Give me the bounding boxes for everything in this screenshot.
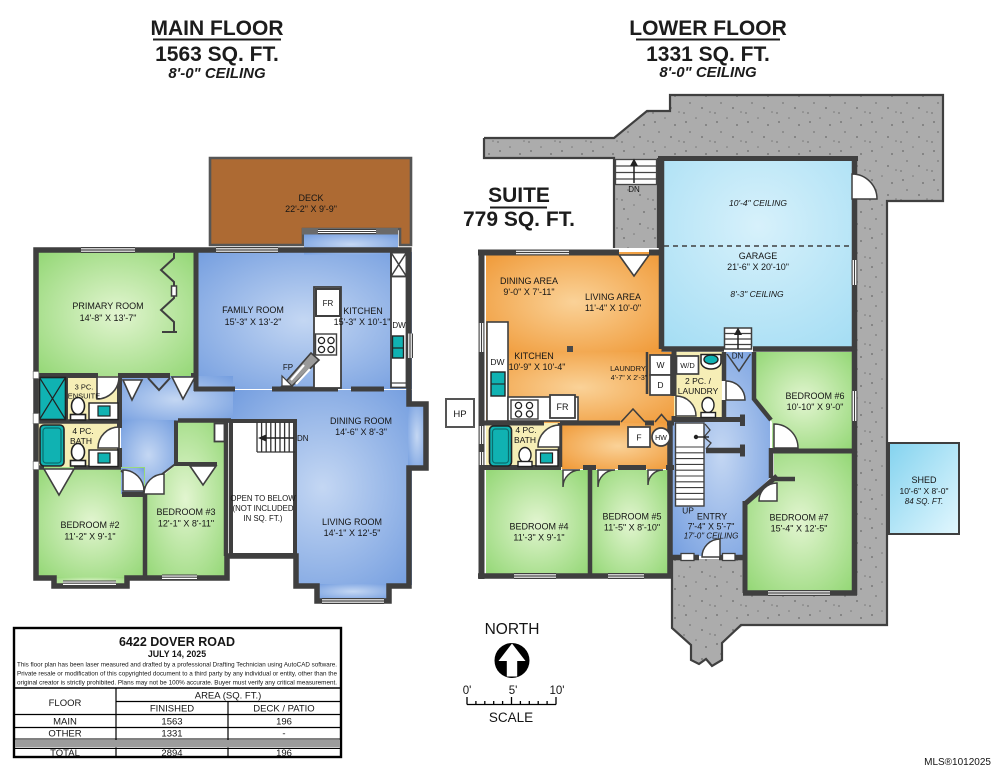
- svg-text:SUITE: SUITE: [488, 184, 550, 207]
- svg-text:FP: FP: [283, 363, 293, 372]
- svg-text:BEDROOM #6: BEDROOM #6: [785, 391, 844, 401]
- svg-text:DN: DN: [297, 434, 309, 443]
- svg-text:This floor plan has been laser: This floor plan has been laser measured …: [17, 662, 337, 669]
- svg-text:PRIMARY ROOM: PRIMARY ROOM: [72, 301, 143, 311]
- svg-text:1331 SQ. FT.: 1331 SQ. FT.: [646, 43, 770, 66]
- svg-text:1563 SQ. FT.: 1563 SQ. FT.: [155, 43, 279, 66]
- svg-text:14'-8" X 13'-7": 14'-8" X 13'-7": [80, 313, 137, 323]
- svg-text:W/D: W/D: [680, 361, 695, 370]
- svg-text:IN SQ. FT.): IN SQ. FT.): [244, 514, 283, 523]
- svg-text:BEDROOM #5: BEDROOM #5: [602, 512, 661, 522]
- svg-text:BEDROOM #2: BEDROOM #2: [60, 520, 119, 530]
- svg-text:15'-3" X 10'-1": 15'-3" X 10'-1": [334, 317, 391, 327]
- svg-text:FAMILY ROOM: FAMILY ROOM: [222, 305, 284, 315]
- svg-text:84 SQ. FT.: 84 SQ. FT.: [905, 497, 943, 506]
- svg-text:14'-1" X 12'-5": 14'-1" X 12'-5": [324, 528, 381, 538]
- svg-text:DW: DW: [392, 321, 406, 330]
- svg-text:SHED: SHED: [911, 475, 937, 485]
- svg-text:10': 10': [550, 685, 565, 697]
- svg-text:OTHER: OTHER: [48, 729, 81, 740]
- svg-text:FINISHED: FINISHED: [150, 704, 194, 715]
- svg-text:8'-0" CEILING: 8'-0" CEILING: [168, 65, 266, 82]
- svg-text:11'-3" X 9'-1": 11'-3" X 9'-1": [513, 533, 564, 543]
- svg-text:UP: UP: [682, 506, 694, 516]
- svg-text:8'-0" CEILING: 8'-0" CEILING: [659, 64, 757, 81]
- svg-text:12'-1" X 8'-11": 12'-1" X 8'-11": [158, 519, 214, 529]
- svg-text:LOWER FLOOR: LOWER FLOOR: [629, 17, 786, 40]
- svg-text:779 SQ. FT.: 779 SQ. FT.: [463, 208, 575, 231]
- svg-text:MLS®1012025: MLS®1012025: [924, 757, 991, 768]
- svg-text:DECK / PATIO: DECK / PATIO: [253, 704, 314, 715]
- svg-text:22'-2" X 9'-9": 22'-2" X 9'-9": [285, 204, 337, 214]
- svg-text:NORTH: NORTH: [485, 621, 540, 638]
- svg-text:1563: 1563: [161, 717, 182, 728]
- svg-text:4 PC.: 4 PC.: [515, 425, 536, 435]
- svg-text:AREA (SQ. FT.): AREA (SQ. FT.): [195, 691, 262, 702]
- svg-text:MAIN FLOOR: MAIN FLOOR: [151, 17, 284, 40]
- svg-text:KITCHEN: KITCHEN: [514, 351, 554, 361]
- svg-text:F: F: [636, 433, 641, 443]
- svg-text:MAIN: MAIN: [53, 717, 77, 728]
- svg-text:0': 0': [463, 685, 472, 697]
- svg-text:15'-4" X 12'-5": 15'-4" X 12'-5": [771, 524, 828, 534]
- svg-text:Private resale or modification: Private resale or modification of this c…: [17, 671, 337, 678]
- svg-text:DINING ROOM: DINING ROOM: [330, 416, 392, 426]
- svg-text:(NOT INCLUDED: (NOT INCLUDED: [233, 504, 294, 513]
- svg-text:JULY 14, 2025: JULY 14, 2025: [148, 649, 206, 659]
- svg-text:KITCHEN: KITCHEN: [343, 306, 383, 316]
- svg-text:FR: FR: [323, 299, 334, 308]
- svg-text:BEDROOM #4: BEDROOM #4: [509, 522, 568, 532]
- svg-text:4'-7" X 2'-3": 4'-7" X 2'-3": [611, 375, 648, 382]
- svg-text:LAUNDRY: LAUNDRY: [610, 364, 646, 373]
- svg-text:10'-6" X 8'-0": 10'-6" X 8'-0": [900, 486, 949, 496]
- svg-text:LIVING ROOM: LIVING ROOM: [322, 517, 382, 527]
- svg-text:3 PC.: 3 PC.: [75, 383, 94, 392]
- svg-text:ENTRY: ENTRY: [697, 512, 727, 522]
- svg-text:GARAGE: GARAGE: [739, 251, 778, 261]
- svg-text:original creator is strictly p: original creator is strictly prohibited.…: [17, 680, 337, 687]
- svg-text:LIVING AREA: LIVING AREA: [585, 292, 641, 302]
- svg-text:DW: DW: [490, 357, 504, 367]
- svg-text:2894: 2894: [161, 748, 182, 759]
- svg-text:9'-0" X 7'-11": 9'-0" X 7'-11": [503, 287, 554, 297]
- svg-text:ENSUITE: ENSUITE: [68, 392, 101, 401]
- svg-text:5': 5': [509, 685, 518, 697]
- svg-text:TOTAL: TOTAL: [50, 748, 80, 759]
- svg-text:2 PC. /: 2 PC. /: [685, 376, 712, 386]
- svg-text:OPEN TO BELOW: OPEN TO BELOW: [230, 494, 296, 503]
- svg-text:7'-4" X 5'-7": 7'-4" X 5'-7": [688, 522, 735, 532]
- svg-text:10'-10" X 9'-0": 10'-10" X 9'-0": [787, 402, 844, 412]
- svg-text:11'-4" X 10'-0": 11'-4" X 10'-0": [585, 303, 641, 313]
- svg-text:10'-4" CEILING: 10'-4" CEILING: [729, 198, 787, 208]
- svg-text:17'-0" CEILING: 17'-0" CEILING: [684, 532, 739, 541]
- svg-text:11'-5" X 8'-10": 11'-5" X 8'-10": [604, 523, 660, 533]
- svg-text:10'-9" X 10'-4": 10'-9" X 10'-4": [509, 362, 566, 372]
- svg-text:1331: 1331: [161, 729, 182, 740]
- svg-text:6422 DOVER ROAD: 6422 DOVER ROAD: [119, 635, 235, 649]
- svg-text:LAUNDRY: LAUNDRY: [678, 386, 719, 396]
- svg-text:21'-6" X 20'-10": 21'-6" X 20'-10": [727, 262, 789, 272]
- svg-text:SCALE: SCALE: [489, 710, 533, 725]
- svg-text:14'-6" X 8'-3": 14'-6" X 8'-3": [335, 427, 387, 437]
- svg-text:FR: FR: [557, 402, 569, 412]
- svg-text:BATH: BATH: [514, 435, 536, 445]
- svg-text:-: -: [282, 729, 285, 740]
- svg-text:DECK: DECK: [298, 193, 323, 203]
- svg-text:196: 196: [276, 748, 292, 759]
- svg-text:4 PC.: 4 PC.: [72, 426, 93, 436]
- svg-text:DN: DN: [732, 352, 744, 361]
- svg-text:11'-2" X 9'-1": 11'-2" X 9'-1": [64, 532, 115, 542]
- svg-text:15'-3" X 13'-2": 15'-3" X 13'-2": [225, 317, 282, 327]
- svg-text:BATH: BATH: [70, 436, 92, 446]
- svg-text:HW: HW: [655, 435, 667, 442]
- svg-text:BEDROOM #7: BEDROOM #7: [769, 513, 828, 523]
- svg-text:W: W: [656, 360, 664, 370]
- svg-text:HP: HP: [453, 409, 466, 420]
- svg-text:D: D: [657, 380, 663, 390]
- svg-text:8'-3" CEILING: 8'-3" CEILING: [730, 289, 784, 299]
- svg-text:BEDROOM #3: BEDROOM #3: [156, 507, 215, 517]
- svg-text:DN: DN: [628, 185, 640, 194]
- svg-text:DINING AREA: DINING AREA: [500, 276, 558, 286]
- svg-text:FLOOR: FLOOR: [49, 698, 82, 709]
- svg-text:196: 196: [276, 717, 292, 728]
